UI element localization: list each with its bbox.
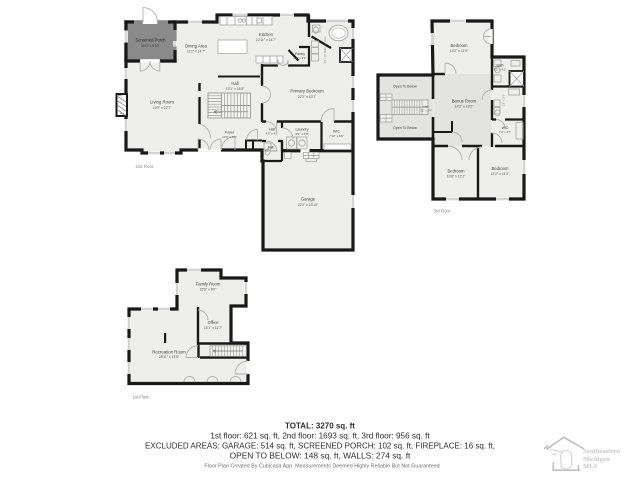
svg-text:Garage: Garage xyxy=(301,197,316,202)
svg-text:Hall: Hall xyxy=(423,105,429,109)
svg-text:3rd Floor: 3rd Floor xyxy=(434,209,451,214)
svg-text:Bedroom: Bedroom xyxy=(451,43,469,48)
svg-text:MLS: MLS xyxy=(583,463,598,470)
svg-text:14'2" x 19'2": 14'2" x 19'2" xyxy=(455,105,474,109)
svg-text:Southeastern: Southeastern xyxy=(583,448,620,455)
svg-text:Laundry: Laundry xyxy=(296,128,309,132)
svg-text:15'1" x 11'7": 15'1" x 11'7" xyxy=(204,326,223,330)
svg-text:Michigan: Michigan xyxy=(583,456,610,463)
svg-text:Living Room: Living Room xyxy=(150,100,174,105)
svg-text:4'9" x 4'3": 4'9" x 4'3" xyxy=(266,132,279,136)
svg-text:5'8" x 4'9": 5'8" x 4'9" xyxy=(294,56,307,60)
svg-text:11'1" x 14'7": 11'1" x 14'7" xyxy=(187,50,206,54)
svg-text:19'9" x 22'7": 19'9" x 22'7" xyxy=(153,106,172,110)
svg-text:22'0" x 23'10": 22'0" x 23'10" xyxy=(298,203,319,207)
svg-text:6'5" x 4'1": 6'5" x 4'1" xyxy=(494,68,506,72)
svg-text:1st Floor: 1st Floor xyxy=(133,395,150,400)
svg-text:7'4" x 4'7": 7'4" x 4'7" xyxy=(499,130,511,134)
svg-text:14'2" x 11'9": 14'2" x 11'9" xyxy=(450,49,469,53)
svg-text:Bedroom: Bedroom xyxy=(448,169,466,174)
svg-text:1st floor: 621 sq. ft, 2nd flo: 1st floor: 621 sq. ft, 2nd floor: 1693 s… xyxy=(210,432,430,441)
svg-text:11'2" x 14'2": 11'2" x 14'2" xyxy=(491,172,510,176)
svg-text:Recreation Room: Recreation Room xyxy=(152,350,186,355)
svg-text:Family Room: Family Room xyxy=(196,282,221,287)
svg-text:10'0" x 6'9": 10'0" x 6'9" xyxy=(222,135,237,139)
svg-text:11'0" x 9'10": 11'0" x 9'10" xyxy=(141,44,160,48)
svg-text:Bath: Bath xyxy=(268,146,275,150)
svg-text:Screened Porch: Screened Porch xyxy=(135,38,166,43)
svg-text:12'11" x 14'7": 12'11" x 14'7" xyxy=(256,38,277,42)
svg-text:5'1" x 5'2": 5'1" x 5'2" xyxy=(265,149,277,153)
svg-text:Bedroom: Bedroom xyxy=(492,166,510,171)
svg-text:2nd Floor: 2nd Floor xyxy=(136,164,154,169)
svg-text:13'1" x 16'8": 13'1" x 16'8" xyxy=(226,87,245,91)
svg-text:28'11" x 19'8": 28'11" x 19'8" xyxy=(159,355,180,359)
svg-text:9'9" x 6'5": 9'9" x 6'5" xyxy=(295,132,308,136)
svg-text:Open To Below: Open To Below xyxy=(393,126,417,130)
svg-text:Dining Area: Dining Area xyxy=(185,44,207,49)
svg-text:TOTAL: 3270 sq. ft: TOTAL: 3270 sq. ft xyxy=(285,422,355,431)
svg-text:22'2" x 13'7": 22'2" x 13'7" xyxy=(298,95,317,99)
svg-text:EXCLUDED AREAS: GARAGE: 514 sq: EXCLUDED AREAS: GARAGE: 514 sq. ft, SCRE… xyxy=(145,442,495,451)
svg-text:Primary Bedroom: Primary Bedroom xyxy=(290,89,324,94)
svg-text:2'5 x 10' Walk-In Closet: 2'5 x 10' Walk-In Closet xyxy=(323,36,327,63)
svg-text:WIC: WIC xyxy=(333,130,340,134)
svg-text:15'6" x 9'9": 15'6" x 9'9" xyxy=(200,288,218,292)
svg-text:OPEN TO BELOW: 148 sq. ft, WAL: OPEN TO BELOW: 148 sq. ft, WALLS: 274 sq… xyxy=(230,451,411,461)
svg-text:7'10" x 6'9": 7'10" x 6'9" xyxy=(329,134,344,138)
svg-text:2'8" x 10'0": 2'8" x 10'0" xyxy=(503,94,506,106)
svg-text:Open To Below: Open To Below xyxy=(393,85,417,89)
svg-text:Office: Office xyxy=(208,320,220,325)
svg-text:Foyer: Foyer xyxy=(225,131,235,135)
svg-text:Floor Plan Created By Cubicasa: Floor Plan Created By Cubicasa App. Meas… xyxy=(204,463,439,469)
svg-text:Bonus Room: Bonus Room xyxy=(452,99,477,104)
svg-text:Hall: Hall xyxy=(231,81,238,86)
svg-text:3'2" x 3'4": 3'2" x 3'4" xyxy=(420,109,432,113)
svg-text:Kitchen: Kitchen xyxy=(259,32,274,37)
svg-text:10'8" x 12'1": 10'8" x 12'1" xyxy=(447,175,466,179)
